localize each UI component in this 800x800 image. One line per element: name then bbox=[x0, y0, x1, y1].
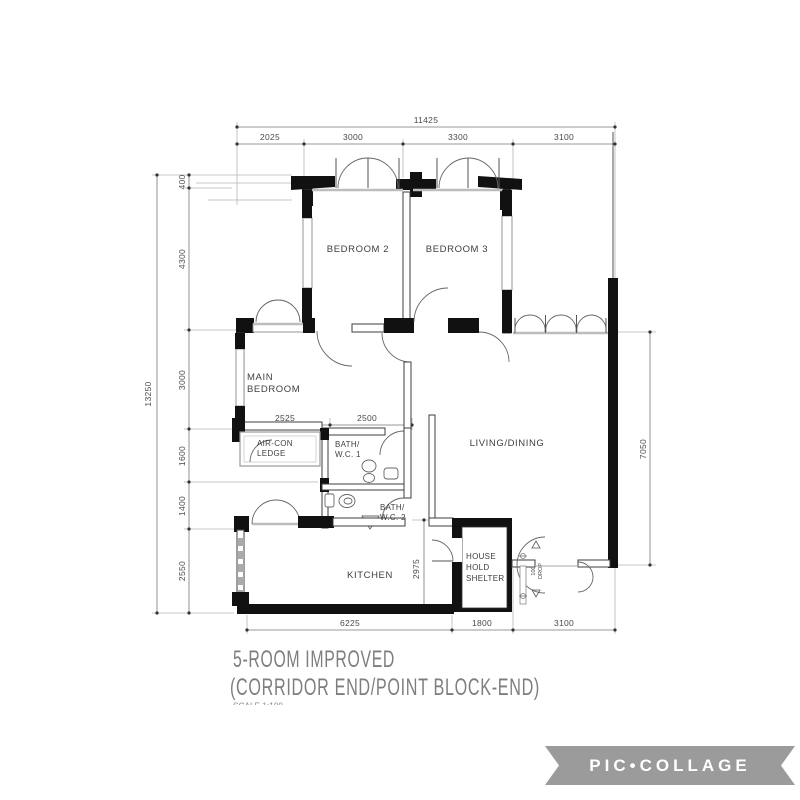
bath-divider-wall bbox=[322, 484, 404, 490]
dim-bottom-seg1: 6225 bbox=[340, 618, 360, 628]
shelter-label-line3: SHELTER bbox=[466, 574, 504, 583]
title-block: 5-ROOM IMPROVED (CORRIDOR END/POINT BLOC… bbox=[225, 646, 540, 719]
kitchen-label: KITCHEN bbox=[347, 570, 393, 581]
kitchen-bottom-wall bbox=[237, 604, 454, 614]
dim-kitchen-height: 2975 bbox=[411, 559, 421, 579]
dim-top-seg2: 3000 bbox=[343, 132, 363, 142]
bedroom2-window bbox=[336, 158, 399, 188]
corridor-east-wall bbox=[429, 415, 435, 518]
bath1-label-line1: BATH/ bbox=[335, 440, 360, 449]
hall-door-arc bbox=[479, 332, 509, 362]
toilet-fixture-bath1 bbox=[362, 460, 398, 483]
shelter-label-line2: HOLD bbox=[466, 563, 489, 572]
main-bedroom-left-window bbox=[236, 349, 244, 406]
dim-top-seg4: 3100 bbox=[554, 132, 574, 142]
main-bedroom-door-arc bbox=[382, 333, 411, 362]
bedroom3-label: BEDROOM 3 bbox=[426, 244, 488, 255]
living-dining-label: LIVING/DINING bbox=[470, 438, 545, 449]
bedroom2-label: BEDROOM 2 bbox=[327, 244, 389, 255]
dim-total-width: 11425 bbox=[414, 115, 439, 125]
bath-east-wall bbox=[404, 428, 411, 498]
main-bedroom-bottom-wall bbox=[240, 422, 322, 430]
plan-title-line2: (CORRIDOR END/POINT BLOCK-END) bbox=[230, 674, 540, 701]
watermark-text: PIC•COLLAGE bbox=[589, 756, 750, 776]
dim-bottom-seg3: 3100 bbox=[554, 618, 574, 628]
living-windows bbox=[515, 315, 606, 333]
drop-note-line1: 100 bbox=[531, 566, 537, 575]
dim-bottom-seg2: 1800 bbox=[472, 618, 492, 628]
aircon-label-line2: LEDGE bbox=[257, 449, 286, 458]
hall-walls-doors bbox=[236, 288, 509, 366]
dim-left-seg1: 400 bbox=[177, 174, 187, 189]
dim-left-seg3: 3000 bbox=[177, 370, 187, 390]
dim-inner-right: 2500 bbox=[357, 413, 377, 423]
living-dining-walls: 100 DROP bbox=[512, 132, 618, 604]
scale-note-crop bbox=[225, 705, 305, 719]
dim-top-seg1: 2025 bbox=[260, 132, 280, 142]
living-right-wall bbox=[608, 278, 618, 568]
dim-total-height: 13250 bbox=[143, 381, 153, 406]
dim-left-seg4: 1600 bbox=[177, 446, 187, 466]
kitchen-door-arc-right bbox=[276, 500, 300, 524]
bath1-label-line2: W.C. 1 bbox=[335, 450, 361, 459]
dim-living-height: 7050 bbox=[638, 439, 648, 459]
floorplan-drawing: 11425 2025 3000 3300 3100 13250 400 4300… bbox=[0, 0, 800, 800]
bedroom2-left-window bbox=[303, 218, 312, 288]
corridor-west-wall bbox=[404, 362, 411, 428]
bedroom2-door-arc bbox=[317, 331, 352, 366]
plan-title-line1: 5-ROOM IMPROVED bbox=[233, 646, 395, 673]
corner-pier bbox=[236, 318, 254, 333]
dim-left-seg5: 1400 bbox=[177, 496, 187, 516]
bedroom3-right-window bbox=[502, 216, 512, 290]
bedroom3-door-arc bbox=[414, 288, 448, 322]
kitchen-door-arc-left bbox=[252, 500, 276, 524]
dim-left-seg2: 4300 bbox=[177, 249, 187, 269]
aircon-label-line1: AIR-CON bbox=[257, 439, 293, 448]
bath2-label-line1: BATH/ bbox=[380, 503, 405, 512]
floorplan-canvas: 11425 2025 3000 3300 3100 13250 400 4300… bbox=[0, 0, 800, 800]
main-bedroom-label-line2: BEDROOM bbox=[247, 384, 300, 395]
entrance-drop-note: 100 DROP bbox=[531, 541, 544, 597]
dim-left-seg6: 2550 bbox=[177, 561, 187, 581]
dim-top-seg3: 3300 bbox=[448, 132, 468, 142]
bath2-label-line2: W.C. 2 bbox=[380, 513, 406, 522]
watermark-ribbon: PIC•COLLAGE bbox=[545, 746, 795, 785]
shelter-door-arc bbox=[432, 540, 453, 561]
main-bedroom-label-line1: MAIN bbox=[247, 372, 273, 383]
shelter-label-line1: HOUSE bbox=[466, 552, 496, 561]
bedroom-walls bbox=[302, 190, 512, 333]
drop-note-line2: DROP bbox=[538, 563, 544, 579]
bedroom-divider-wall bbox=[403, 192, 410, 320]
kitchen-walls bbox=[232, 500, 454, 614]
dimension-labels: 11425 2025 3000 3300 3100 13250 400 4300… bbox=[143, 115, 648, 628]
